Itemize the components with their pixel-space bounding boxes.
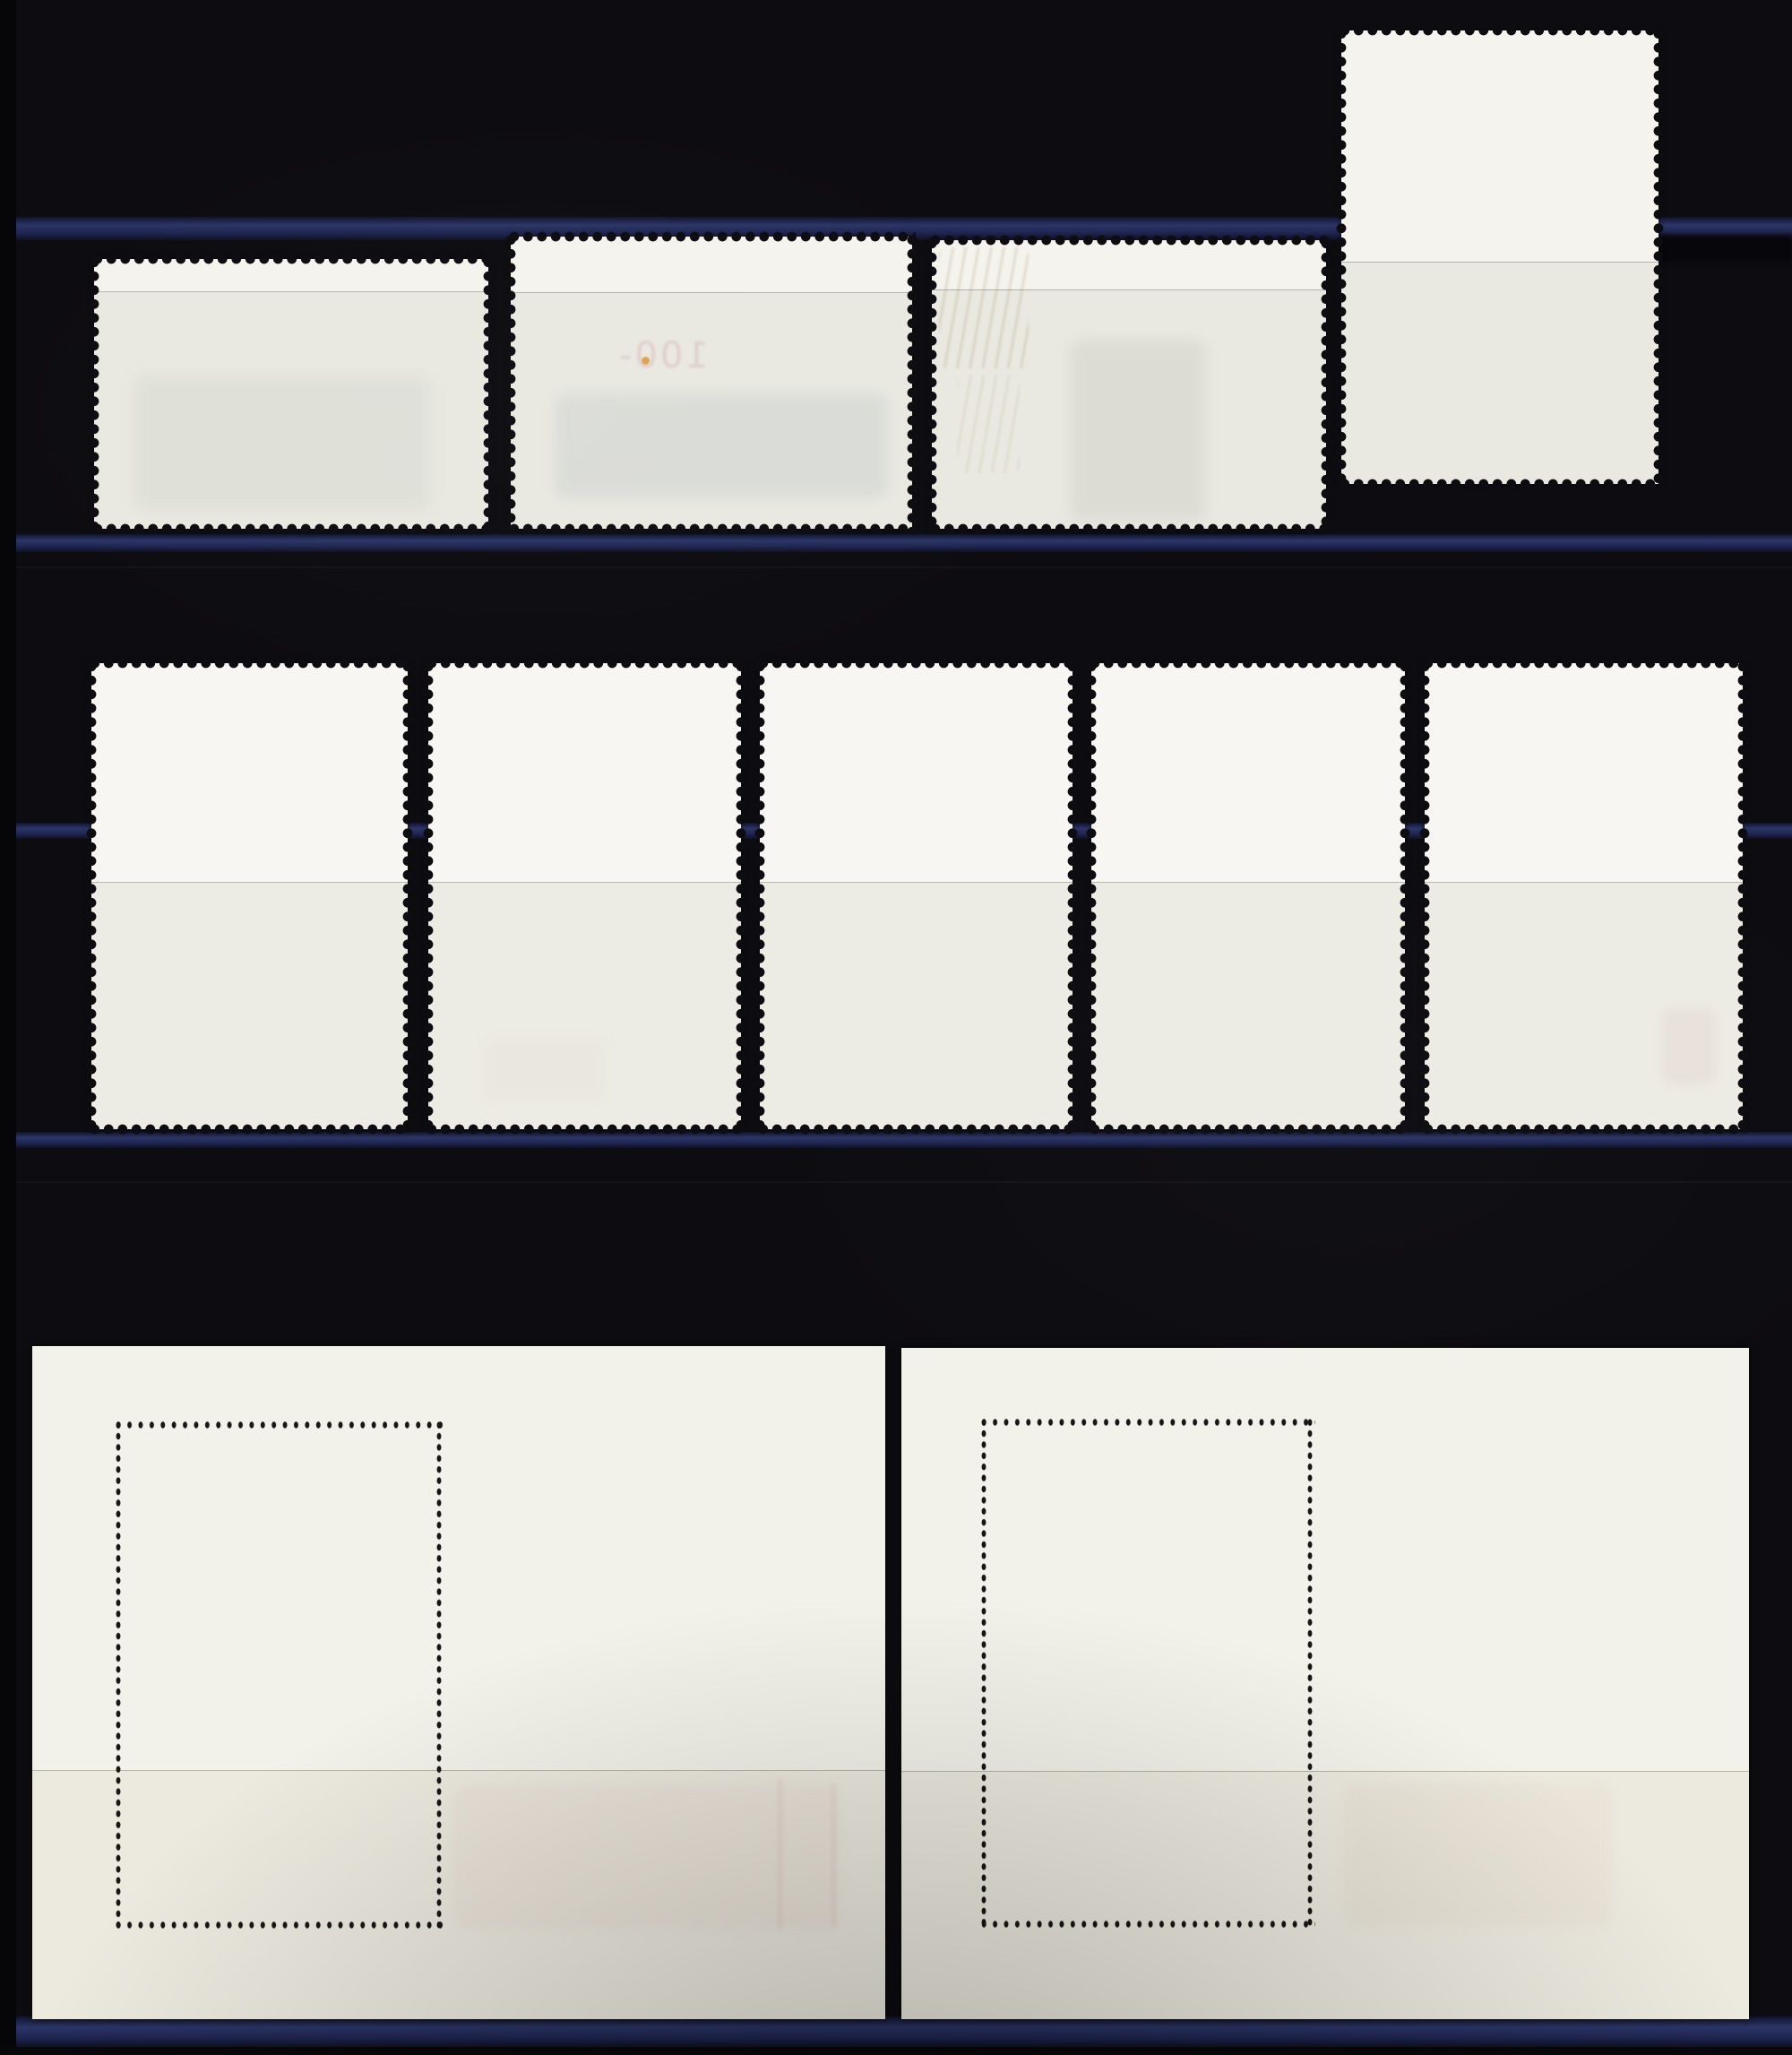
film-edge-line <box>91 882 408 883</box>
perforation-top <box>425 656 745 670</box>
stamp-back-1 <box>94 259 488 529</box>
perforation-right <box>905 233 919 532</box>
perforation-dots-left <box>113 1420 124 1930</box>
film-edge-line <box>760 882 1073 883</box>
stamp-back-7 <box>760 663 1073 1129</box>
design-show-through <box>1344 1783 1613 1927</box>
perforation-dots-right <box>434 1420 444 1930</box>
stamp-paper <box>760 663 1073 1129</box>
perforation-left <box>87 255 101 532</box>
film-edge-line <box>932 289 1326 290</box>
stamp-paper <box>1091 663 1405 1129</box>
perforation-right <box>481 255 495 532</box>
perforation-dots-right <box>1305 1417 1315 1930</box>
perforation-top <box>928 233 1330 247</box>
perforation-right <box>1736 660 1750 1133</box>
strip-film-seam <box>0 1181 1792 1183</box>
stamp-back-4 <box>1341 30 1658 484</box>
perforation-left <box>421 660 435 1133</box>
stamp-back-8 <box>1091 663 1405 1129</box>
souvenir-sheet-back-2 <box>901 1348 1749 2019</box>
perforation-bottom <box>928 522 1330 536</box>
strip-film-seam <box>0 566 1792 568</box>
perforation-bottom <box>756 1122 1076 1136</box>
album-strip-edge-2 <box>0 534 1792 552</box>
perforation-dots-bottom <box>978 1919 1315 1930</box>
film-edge-line <box>428 882 741 883</box>
perforation-top <box>90 252 492 266</box>
postmark-trace <box>939 247 1029 368</box>
film-edge-line <box>1091 882 1405 883</box>
strip-pocket-shadow <box>1658 235 1792 262</box>
perforation-dots-top <box>978 1417 1315 1428</box>
show-through-streak <box>831 1783 836 1927</box>
stamp-back-3 <box>932 240 1326 529</box>
perforation-dots-top <box>113 1420 444 1430</box>
film-edge-line <box>94 291 488 292</box>
perforation-right <box>734 660 748 1133</box>
perforated-stamp-outline <box>984 1422 1310 1924</box>
stamp-back-6 <box>428 663 741 1129</box>
perforation-top <box>1421 656 1746 670</box>
stamp-paper <box>91 663 408 1129</box>
design-show-through <box>556 394 887 497</box>
perforated-stamp-outline <box>118 1425 439 1925</box>
perforation-bottom <box>1421 1122 1746 1136</box>
perforation-left <box>1417 660 1432 1133</box>
perforation-left <box>504 233 518 532</box>
design-show-through <box>482 1040 607 1102</box>
perforation-top <box>1088 656 1409 670</box>
stamp-back-2: 100- <box>511 237 912 529</box>
perforation-dots-left <box>978 1417 989 1930</box>
perforation-right <box>1319 237 1333 532</box>
perforation-dots-bottom <box>113 1920 444 1930</box>
show-through-streak <box>778 1778 782 1930</box>
album-strip-edge-5 <box>0 2016 1792 2047</box>
souvenir-sheet-back-1 <box>32 1346 885 2019</box>
stamp-paper <box>1341 30 1658 484</box>
perforation-left <box>84 660 99 1133</box>
film-edge-line <box>511 292 912 293</box>
perforation-right <box>401 660 415 1133</box>
perforation-right <box>1065 660 1080 1133</box>
perforation-left <box>753 660 767 1133</box>
perforation-right <box>1651 27 1666 488</box>
perforation-bottom <box>90 522 492 536</box>
perforation-bottom <box>88 1122 411 1136</box>
perforation-left <box>1084 660 1098 1133</box>
film-edge-line <box>1425 882 1743 883</box>
perforation-bottom <box>1338 477 1662 491</box>
perforation-left <box>925 237 939 532</box>
stamp-back-9 <box>1425 663 1743 1129</box>
perforation-left <box>1334 27 1348 488</box>
orange-fleck <box>642 357 650 365</box>
page-bottom-edge <box>0 2047 1792 2055</box>
design-show-through <box>134 376 430 510</box>
perforation-bottom <box>1088 1122 1409 1136</box>
stockbook-page-photo: 100- <box>0 0 1792 2055</box>
perforation-bottom <box>507 522 916 536</box>
perforation-bottom <box>425 1122 745 1136</box>
page-left-edge <box>0 0 16 2055</box>
postmark-trace <box>957 375 1020 473</box>
film-edge-line <box>1341 262 1658 263</box>
show-through-value-text: 100- <box>616 335 709 376</box>
design-show-through <box>1662 1008 1716 1084</box>
perforation-top <box>756 656 1076 670</box>
perforation-top <box>1338 23 1662 38</box>
perforation-top <box>507 229 916 244</box>
perforation-right <box>1398 660 1412 1133</box>
perforation-top <box>88 656 411 670</box>
design-show-through <box>1071 341 1205 520</box>
stamp-back-5 <box>91 663 408 1129</box>
